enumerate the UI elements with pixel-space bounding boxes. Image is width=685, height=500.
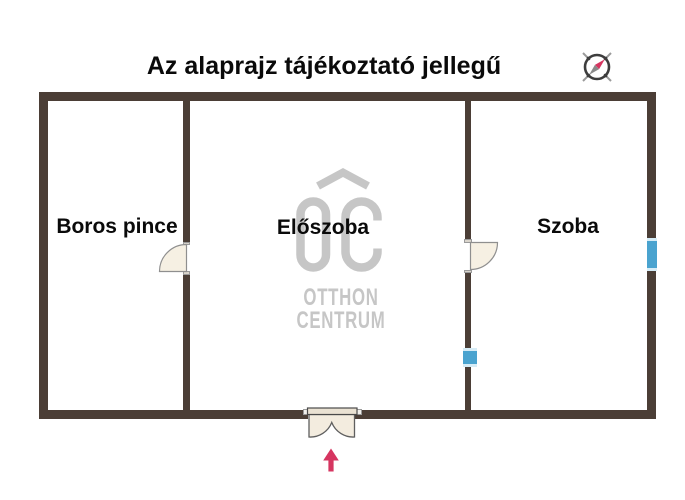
entrance-arrow-icon (323, 449, 339, 472)
wall-divider2-lower (465, 270, 472, 411)
window-right-wall-glass (647, 241, 657, 267)
logo-roof-chevron-icon (318, 173, 368, 187)
wall-bottom-right-segment (354, 410, 656, 419)
entrance-jamb-left (303, 409, 309, 416)
wall-divider1-lower (183, 272, 190, 411)
wall-top (39, 92, 656, 101)
door2-jamb-bottom (464, 270, 472, 274)
door1-jamb-top (183, 242, 191, 246)
door1-jamb-bottom (183, 271, 191, 275)
window-wall2-icon (463, 348, 478, 368)
wall-bottom-left-segment (39, 410, 308, 419)
door-swing-boros-pince-icon (160, 245, 187, 272)
entrance-double-door-icon (308, 408, 358, 437)
floorplan-canvas: Az alaprajz tájékoztató jellegű OTTHON C… (0, 0, 685, 500)
window-right-wall-icon (647, 238, 657, 271)
door-swing-szoba-icon (471, 243, 498, 270)
room-label-eloszoba: Előszoba (233, 216, 413, 240)
room-label-szoba: Szoba (478, 215, 658, 239)
wall-divider2-upper (465, 101, 472, 243)
wall-left (39, 92, 48, 419)
door2-jamb-top (464, 239, 472, 243)
room-label-boros-pince: Boros pince (27, 215, 207, 239)
window-wall2-glass (463, 351, 478, 364)
watermark-centrum-text: CENTRUM (236, 307, 446, 335)
disclaimer-title: Az alaprajz tájékoztató jellegű (39, 52, 609, 81)
entrance-jamb-right (356, 409, 362, 416)
